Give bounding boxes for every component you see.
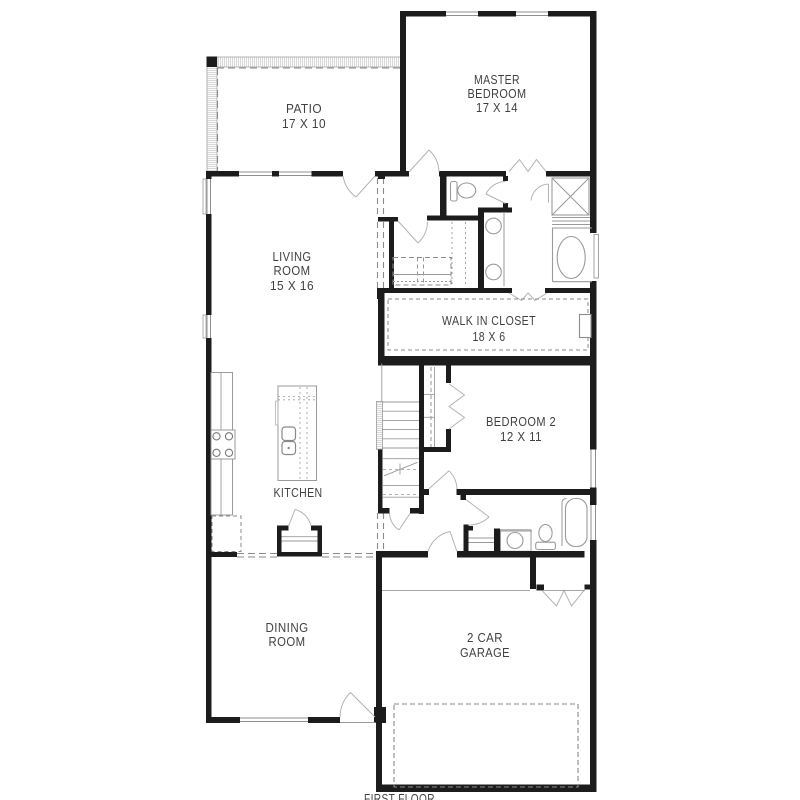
svg-text:BEDROOM: BEDROOM xyxy=(468,86,527,101)
svg-text:MASTER: MASTER xyxy=(474,72,520,87)
svg-text:2 CAR: 2 CAR xyxy=(467,630,503,645)
svg-text:WALK IN CLOSET: WALK IN CLOSET xyxy=(442,313,536,328)
svg-text:18 X 6: 18 X 6 xyxy=(473,329,506,344)
svg-text:PATIO: PATIO xyxy=(286,101,322,116)
svg-text:DINING: DINING xyxy=(266,620,309,635)
svg-text:ROOM: ROOM xyxy=(274,263,311,278)
svg-text:17 X 10: 17 X 10 xyxy=(282,116,326,131)
svg-text:ROOM: ROOM xyxy=(269,634,306,649)
svg-text:GARAGE: GARAGE xyxy=(460,645,510,660)
svg-text:BEDROOM 2: BEDROOM 2 xyxy=(486,414,556,429)
svg-text:KITCHEN: KITCHEN xyxy=(274,485,323,500)
svg-text:17 X 14: 17 X 14 xyxy=(476,100,518,115)
svg-text:15 X 16: 15 X 16 xyxy=(270,278,314,293)
svg-text:FIRST FLOOR: FIRST FLOOR xyxy=(364,791,435,800)
svg-text:12 X 11: 12 X 11 xyxy=(500,429,542,444)
svg-text:LIVING: LIVING xyxy=(273,249,312,264)
